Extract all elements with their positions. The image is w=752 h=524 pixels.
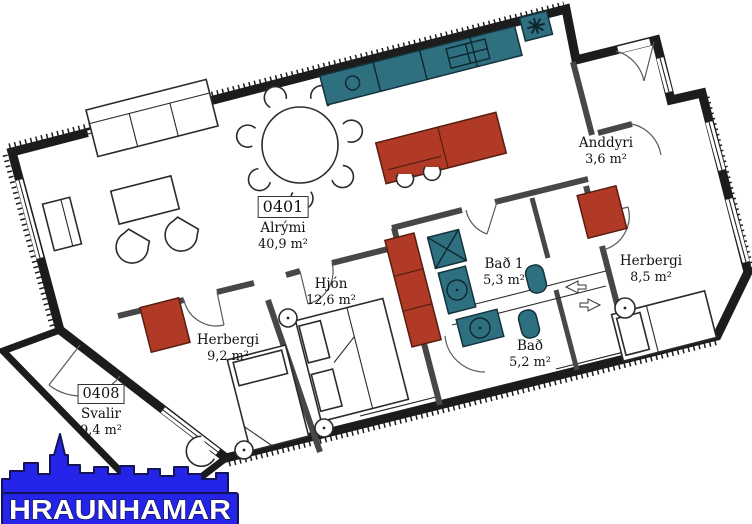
- unit-label-0401: 0401 Alrými 40,9 m²: [258, 196, 309, 253]
- room-label-bad: Bað 5,2 m²: [509, 338, 551, 371]
- room-area: 5,2 m²: [509, 355, 551, 371]
- room-name: Herbergi: [620, 253, 682, 270]
- room-label-bad1: Bað 1 5,3 m²: [483, 256, 525, 289]
- room-area: 5,3 m²: [483, 273, 525, 289]
- room-name: Svalir: [81, 406, 121, 423]
- room-area: 12,6 m²: [306, 293, 356, 309]
- room-label-herbergi-9: Herbergi 9,2 m²: [197, 332, 259, 365]
- shower: [428, 230, 467, 269]
- nightstand-lamp: [279, 309, 297, 327]
- floor-plan-page: HRAUNHAMAR 0401 Alrými 40,9 m² Anddyri 3…: [0, 0, 752, 524]
- room-label-hjon: Hjón 12,6 m²: [306, 276, 356, 309]
- room-area: 40,9 m²: [258, 237, 308, 253]
- nightstand-lamp: [235, 441, 253, 459]
- unit-number: 0401: [258, 196, 309, 218]
- room-area: 8,5 m²: [630, 270, 672, 286]
- room-name: Herbergi: [197, 332, 259, 349]
- logo-text: HRAUNHAMAR: [9, 494, 231, 524]
- bar-stool: [397, 174, 414, 187]
- nightstand-lamp: [615, 298, 635, 318]
- room-name: Bað 1: [485, 256, 524, 273]
- room-label-anddyri: Anddyri 3,6 m²: [579, 135, 633, 168]
- bar-stool: [424, 167, 441, 180]
- unit-number: 0408: [78, 384, 125, 404]
- unit-label-0408: 0408 Svalir 9,4 m²: [78, 384, 125, 439]
- room-name: Anddyri: [579, 135, 633, 152]
- room-area: 9,4 m²: [80, 423, 122, 439]
- room-area: 9,2 m²: [207, 349, 249, 365]
- nightstand-lamp: [315, 419, 333, 437]
- room-area: 3,6 m²: [585, 152, 627, 168]
- room-name: Alrými: [260, 220, 305, 237]
- room-label-herbergi-8: Herbergi 8,5 m²: [620, 253, 682, 286]
- room-name: Hjón: [315, 276, 348, 293]
- room-name: Bað: [517, 338, 543, 355]
